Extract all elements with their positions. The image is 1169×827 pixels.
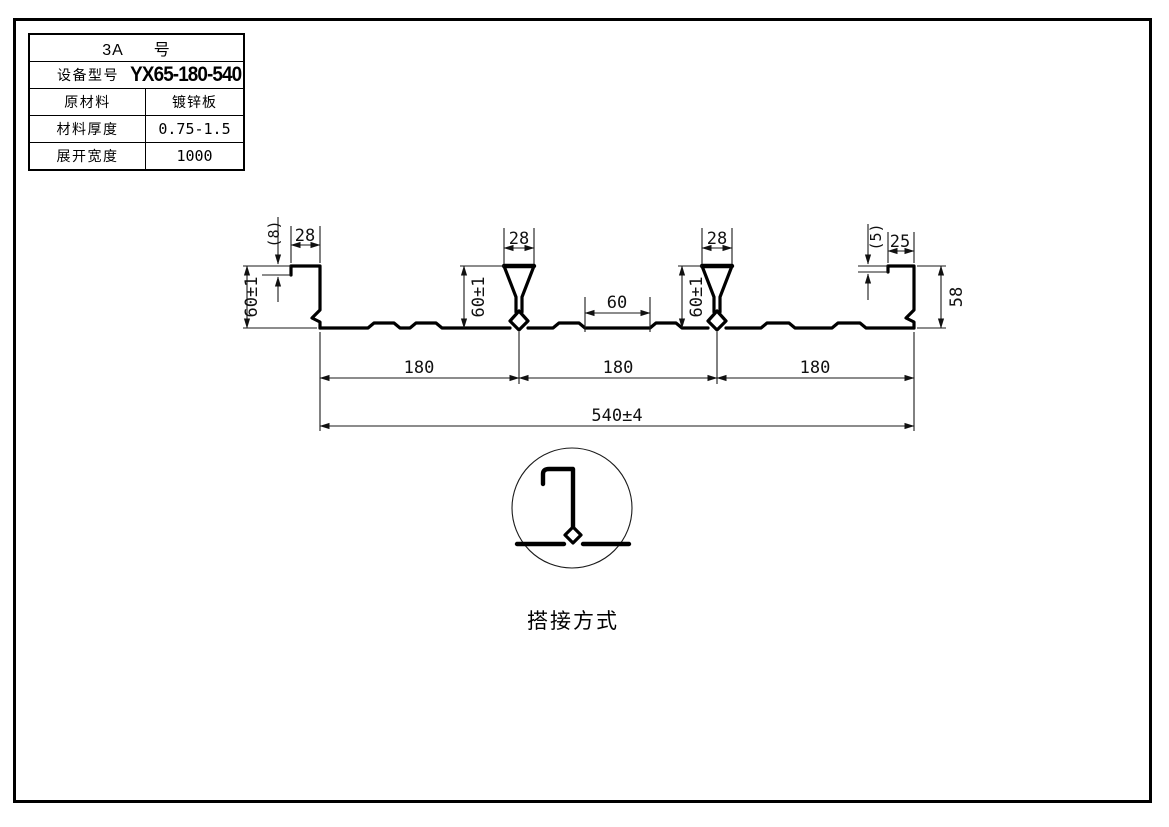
dim-rib2-height-label: 60±1	[687, 277, 707, 318]
profile-bottom-1	[320, 323, 510, 328]
profile-drawing: (8) 28 60±1 28 60±1 60 28 60±1 (5) 25 58…	[0, 0, 1169, 827]
dim-left-lip-label: (8)	[265, 220, 283, 247]
profile-right-edge	[888, 266, 914, 328]
profile-bottom-2	[528, 323, 708, 328]
profile-bottom-3	[726, 323, 914, 328]
dim-pitch3-label: 180	[800, 358, 831, 378]
dim-pitch1-label: 180	[404, 358, 435, 378]
dim-right-height-label: 58	[947, 287, 967, 307]
dim-right-flange-label: 25	[890, 232, 910, 252]
profile-left-edge	[291, 266, 320, 328]
drawing-sheet: 3A 号 设备型号 YX65-180-540 原材料 镀锌板 材料厚度 0.75…	[0, 0, 1169, 827]
profile-outline	[291, 266, 914, 330]
dim-mid-gap-label: 60	[607, 293, 627, 313]
dim-right-lip-label: (5)	[867, 223, 885, 250]
dim-rib1-top-label: 28	[509, 229, 529, 249]
rib-1	[504, 266, 534, 330]
dim-pitch2-label: 180	[603, 358, 634, 378]
dim-rib2-top-label: 28	[707, 229, 727, 249]
lap-joint-detail: 搭接方式	[512, 448, 632, 633]
dim-overall-label: 540±4	[591, 406, 642, 426]
detail-caption: 搭接方式	[527, 610, 619, 633]
dim-rib1-height-label: 60±1	[469, 277, 489, 318]
dim-left-flange-label: 28	[295, 226, 315, 246]
lap-joint-diamond	[565, 527, 581, 543]
lap-joint-hook	[543, 469, 573, 527]
dim-left-height-label: 60±1	[242, 277, 262, 318]
